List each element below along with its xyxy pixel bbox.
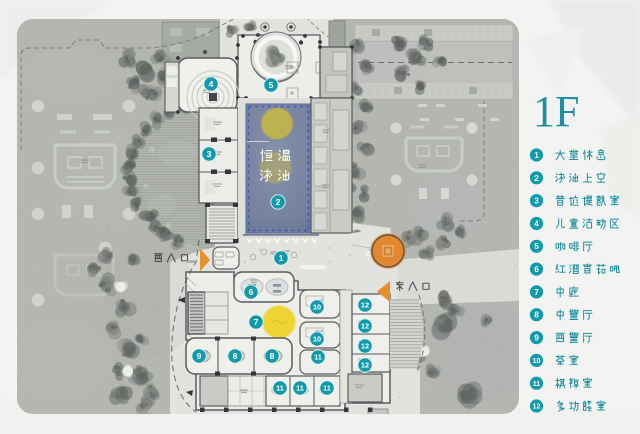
svg-text:7: 7 <box>534 288 539 297</box>
svg-text:2: 2 <box>534 174 539 183</box>
svg-text:4: 4 <box>534 219 539 228</box>
svg-text:12: 12 <box>361 342 369 351</box>
svg-text:8: 8 <box>233 351 238 361</box>
svg-text:12: 12 <box>361 322 369 331</box>
svg-text:12: 12 <box>533 402 541 411</box>
svg-text:11: 11 <box>296 384 304 393</box>
svg-text:1F: 1F <box>533 87 579 136</box>
svg-text:11: 11 <box>276 384 284 393</box>
svg-text:12: 12 <box>361 361 369 370</box>
svg-text:11: 11 <box>314 353 322 362</box>
svg-text:6: 6 <box>534 265 539 274</box>
svg-text:2: 2 <box>276 197 281 207</box>
svg-text:11: 11 <box>323 384 331 393</box>
svg-text:5: 5 <box>534 242 539 251</box>
svg-text:7: 7 <box>254 317 259 327</box>
svg-text:5: 5 <box>269 80 274 90</box>
svg-text:3: 3 <box>207 149 212 159</box>
svg-text:9: 9 <box>534 334 539 343</box>
svg-text:9: 9 <box>197 351 202 361</box>
svg-text:1: 1 <box>534 151 539 160</box>
svg-text:8: 8 <box>534 311 539 320</box>
svg-text:10: 10 <box>313 303 321 312</box>
svg-text:6: 6 <box>249 287 254 297</box>
svg-text:10: 10 <box>533 356 541 365</box>
svg-text:8: 8 <box>270 351 275 361</box>
svg-text:10: 10 <box>313 335 321 344</box>
svg-text:4: 4 <box>209 79 214 89</box>
svg-text:1: 1 <box>279 253 284 263</box>
svg-text:3: 3 <box>534 197 539 206</box>
svg-text:12: 12 <box>361 301 369 310</box>
svg-text:11: 11 <box>533 379 541 388</box>
